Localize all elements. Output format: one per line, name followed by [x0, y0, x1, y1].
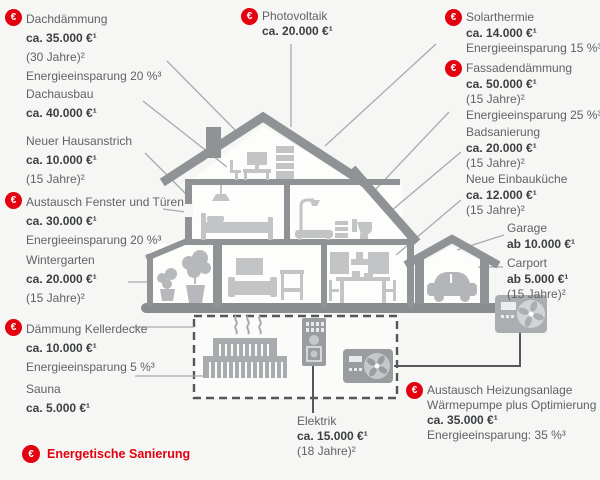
- label-fenster: € Austausch Fenster und Türen ca. 30.000…: [26, 193, 184, 250]
- measure-savings: Energieeinsparung 20 %³: [26, 67, 161, 86]
- measure-name: Dämmung Kellerdecke: [26, 320, 155, 339]
- measure-savings: Energieeinsparung: 35 %³: [427, 428, 596, 443]
- measure-name: Neue Einbauküche: [466, 172, 567, 188]
- label-photovoltaik: € Photovoltaik ca. 20.000 €¹: [262, 9, 333, 39]
- electrical-panel: [302, 318, 326, 366]
- energy-renovation-icon: €: [241, 8, 258, 25]
- label-wintergarten: Wintergarten ca. 20.000 €¹ (15 Jahre)²: [26, 251, 97, 308]
- measure-name: Fassadendämmung: [466, 61, 600, 77]
- measure-price: ca. 20.000 €¹: [466, 141, 540, 157]
- measure-price: ca. 20.000 €¹: [262, 24, 333, 39]
- measure-name: Badsanierung: [466, 125, 540, 141]
- measure-price: ca. 20.000 €¹: [26, 270, 97, 289]
- measure-price: ca. 35.000 €¹: [26, 29, 161, 48]
- measure-price: ca. 10.000 €¹: [26, 339, 155, 358]
- measure-name: Neuer Hausanstrich: [26, 132, 132, 151]
- measure-name-2: Wärmepumpe plus Optimierung: [427, 398, 596, 413]
- measure-price: ca. 5.000 €¹: [26, 399, 90, 418]
- measure-name: Sauna: [26, 380, 90, 399]
- legend-label: Energetische Sanierung: [47, 447, 190, 461]
- measure-duration: (30 Jahre)²: [26, 48, 161, 67]
- measure-name: Wintergarten: [26, 251, 97, 270]
- label-solarthermie: € Solarthermie ca. 14.000 €¹ Energieeins…: [466, 10, 600, 57]
- measure-duration: (15 Jahre)²: [466, 203, 567, 219]
- label-hausanstrich: Neuer Hausanstrich ca. 10.000 €¹ (15 Jah…: [26, 132, 132, 189]
- label-einbaukueche: Neue Einbauküche ca. 12.000 €¹ (15 Jahre…: [466, 172, 567, 219]
- label-kellerdecke: € Dämmung Kellerdecke ca. 10.000 €¹ Ener…: [26, 320, 155, 377]
- measure-savings: Energieeinsparung 20 %³: [26, 231, 184, 250]
- measure-name: Austausch Heizungsanlage: [427, 383, 596, 398]
- label-carport: Carport ab 5.000 €¹ (15 Jahre)²: [507, 256, 568, 303]
- measure-name: Dachdämmung: [26, 10, 161, 29]
- heat-pump-line: [394, 333, 520, 366]
- measure-price: ca. 10.000 €¹: [26, 151, 132, 170]
- window-gap: [184, 204, 193, 217]
- measure-price: ab 5.000 €¹: [507, 272, 568, 288]
- energy-renovation-icon: €: [5, 192, 22, 209]
- measure-price: ab 10.000 €¹: [507, 237, 575, 253]
- label-dachdaemmung: € Dachdämmung ca. 35.000 €¹ (30 Jahre)² …: [26, 10, 161, 86]
- measure-duration: (15 Jahre)²: [26, 170, 132, 189]
- measure-duration: (15 Jahre)²: [466, 156, 540, 172]
- heat-pump-indoor: [343, 349, 393, 383]
- measure-savings: Energieeinsparung 5 %³: [26, 358, 155, 377]
- energy-renovation-icon: €: [445, 60, 462, 77]
- measure-price: ca. 15.000 €¹: [297, 429, 368, 444]
- measure-savings: Energieeinsparung 15 %³: [466, 41, 600, 57]
- energy-renovation-icon: €: [5, 9, 22, 26]
- energy-renovation-icon: €: [445, 9, 462, 26]
- measure-price: ca. 14.000 €¹: [466, 26, 600, 42]
- label-garage: Garage ab 10.000 €¹: [507, 221, 575, 252]
- measure-price: ca. 12.000 €¹: [466, 188, 567, 204]
- label-badsanierung: Badsanierung ca. 20.000 €¹ (15 Jahre)²: [466, 125, 540, 172]
- measure-name: Dachausbau: [26, 85, 97, 104]
- measure-duration: (15 Jahre)²: [26, 289, 97, 308]
- measure-duration: (15 Jahre)²: [507, 287, 568, 303]
- measure-price: ca. 30.000 €¹: [26, 212, 184, 231]
- legend: € Energetische Sanierung: [47, 447, 190, 461]
- measure-savings: Energieeinsparung 25 %³: [466, 108, 600, 124]
- measure-name: Elektrik: [297, 414, 368, 429]
- measure-name: Carport: [507, 256, 568, 272]
- label-elektrik: Elektrik ca. 15.000 €¹ (18 Jahre)²: [297, 414, 368, 459]
- label-sauna: Sauna ca. 5.000 €¹: [26, 380, 90, 418]
- label-dachausbau: Dachausbau ca. 40.000 €¹: [26, 85, 97, 123]
- measure-price: ca. 40.000 €¹: [26, 104, 97, 123]
- measure-price: ca. 35.000 €¹: [427, 413, 596, 428]
- label-fassadendaemmung: € Fassadendämmung ca. 50.000 €¹ (15 Jahr…: [466, 61, 600, 123]
- label-heizungsanlage: € Austausch Heizungsanlage Wärmepumpe pl…: [427, 383, 596, 443]
- measure-price: ca. 50.000 €¹: [466, 77, 600, 93]
- infographic-energetische-sanierung: € Dachdämmung ca. 35.000 €¹ (30 Jahre)² …: [0, 0, 600, 480]
- measure-duration: (18 Jahre)²: [297, 444, 368, 459]
- energy-renovation-icon: €: [406, 382, 423, 399]
- measure-name: Garage: [507, 221, 575, 237]
- measure-name: Photovoltaik: [262, 9, 333, 24]
- measure-name: Austausch Fenster und Türen: [26, 193, 184, 212]
- measure-name: Solarthermie: [466, 10, 600, 26]
- energy-renovation-icon: €: [22, 445, 40, 463]
- energy-renovation-icon: €: [5, 319, 22, 336]
- measure-duration: (15 Jahre)²: [466, 92, 600, 108]
